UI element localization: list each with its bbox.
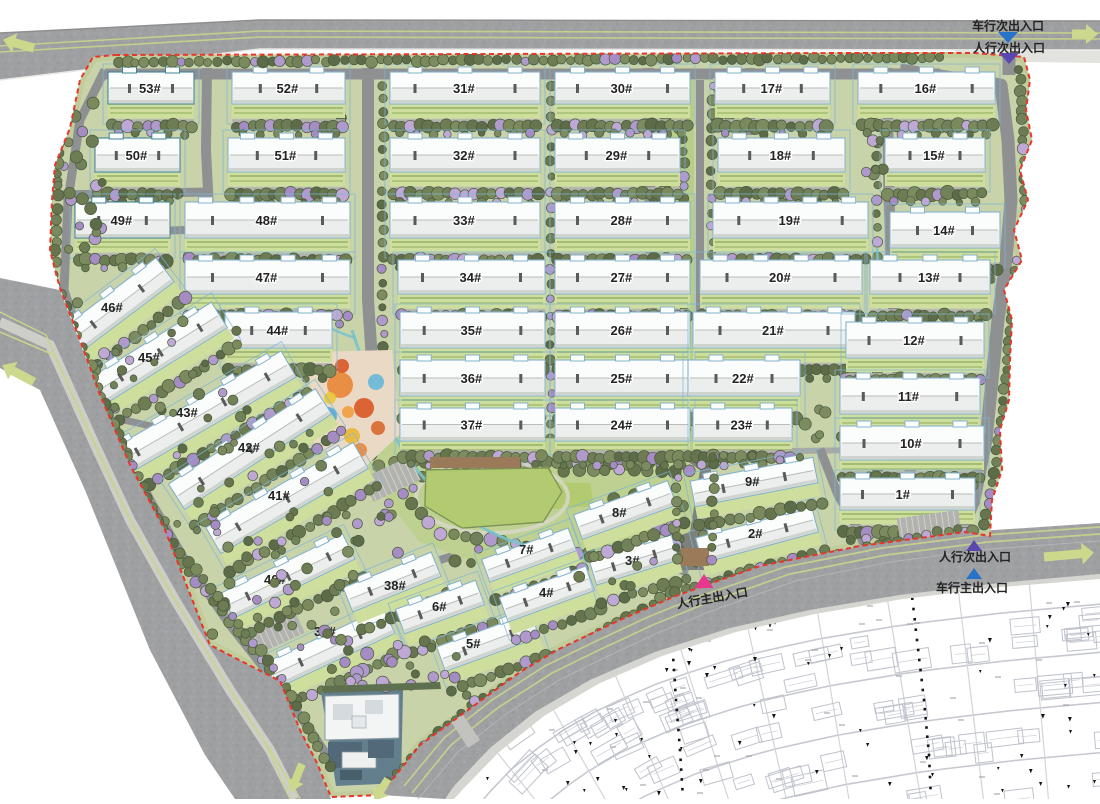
svg-text:38#: 38# (384, 578, 406, 593)
svg-text:34#: 34# (460, 270, 482, 285)
svg-text:12#: 12# (903, 333, 925, 348)
svg-text:6#: 6# (432, 599, 447, 614)
svg-text:17#: 17# (761, 81, 783, 96)
svg-text:47#: 47# (256, 270, 278, 285)
svg-text:5#: 5# (466, 636, 481, 651)
svg-text:48#: 48# (256, 213, 278, 228)
svg-text:13#: 13# (918, 270, 940, 285)
svg-text:31#: 31# (453, 81, 475, 96)
svg-text:人行次出入口: 人行次出入口 (939, 549, 1011, 564)
svg-text:42#: 42# (238, 440, 260, 455)
svg-text:53#: 53# (139, 81, 161, 96)
svg-text:33#: 33# (453, 213, 475, 228)
svg-text:35#: 35# (461, 323, 483, 338)
svg-text:16#: 16# (915, 81, 937, 96)
svg-text:41#: 41# (268, 488, 290, 503)
svg-text:32#: 32# (453, 148, 475, 163)
svg-text:37#: 37# (461, 418, 483, 433)
svg-text:2#: 2# (748, 526, 763, 541)
svg-text:14#: 14# (933, 223, 955, 238)
svg-text:26#: 26# (611, 323, 633, 338)
svg-text:22#: 22# (732, 371, 754, 386)
svg-text:46#: 46# (101, 300, 123, 315)
svg-text:4#: 4# (539, 585, 554, 600)
svg-text:9#: 9# (745, 474, 760, 489)
svg-text:车行主出入口: 车行主出入口 (936, 580, 1008, 595)
svg-text:24#: 24# (611, 418, 633, 433)
svg-text:11#: 11# (898, 389, 920, 404)
svg-text:25#: 25# (611, 371, 633, 386)
svg-text:27#: 27# (611, 270, 633, 285)
svg-text:44#: 44# (267, 323, 289, 338)
svg-text:49#: 49# (111, 213, 133, 228)
svg-text:51#: 51# (275, 148, 297, 163)
svg-text:28#: 28# (611, 213, 633, 228)
svg-text:50#: 50# (126, 148, 148, 163)
svg-text:29#: 29# (606, 148, 628, 163)
svg-text:43#: 43# (176, 405, 198, 420)
svg-text:10#: 10# (900, 436, 922, 451)
svg-text:车行次出入口: 车行次出入口 (972, 18, 1044, 33)
svg-text:15#: 15# (923, 148, 945, 163)
svg-text:18#: 18# (770, 148, 792, 163)
svg-text:20#: 20# (769, 270, 791, 285)
svg-text:人行次出入口: 人行次出入口 (973, 40, 1045, 55)
svg-text:23#: 23# (731, 418, 753, 433)
svg-text:30#: 30# (611, 81, 633, 96)
svg-text:7#: 7# (519, 542, 534, 557)
svg-text:8#: 8# (612, 505, 627, 520)
svg-text:21#: 21# (762, 323, 784, 338)
svg-text:36#: 36# (461, 371, 483, 386)
svg-text:19#: 19# (779, 213, 801, 228)
svg-text:52#: 52# (277, 81, 299, 96)
svg-text:1#: 1# (896, 487, 911, 502)
